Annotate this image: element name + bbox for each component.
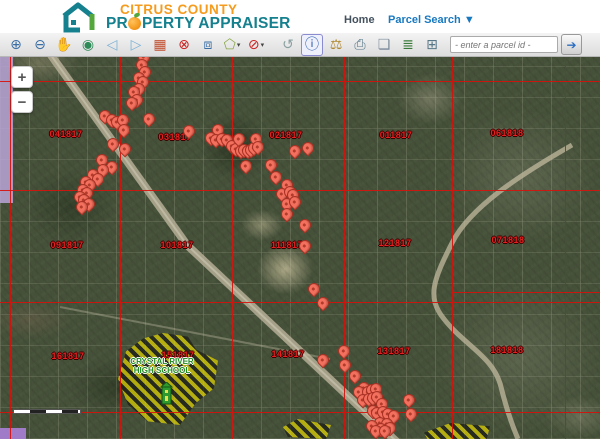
grid-line-horizontal — [0, 412, 600, 413]
grid-line-vertical — [452, 57, 453, 439]
layers-button[interactable]: ≣ — [397, 34, 419, 56]
map-zoom-out-button[interactable]: − — [11, 91, 33, 113]
zoom-in-icon: ⊕ — [10, 38, 22, 52]
full-extent-globe-icon: ◉ — [82, 38, 94, 52]
section-label-181818: 181818 — [490, 345, 523, 355]
undo-extent-button[interactable]: ↺ — [277, 34, 299, 56]
undo-extent-icon: ↺ — [282, 38, 294, 52]
clear-graphics-button[interactable]: ⊗ — [173, 34, 195, 56]
nav-parcel-search-dropdown[interactable]: Parcel Search ▼ — [388, 14, 475, 26]
map-zoom-in-button[interactable]: + — [11, 66, 33, 88]
section-label-121817: 121817 — [378, 238, 411, 248]
map-toolbar: ⊕⊖✋◉◁▷▦⊗⧈⬠▾⊘▾↺ⓘ⚖⎙❏≣⊞ ➔ — [0, 33, 600, 57]
header: CITRUS COUNTY PRPERTY APPRAISER Home Par… — [0, 0, 600, 33]
overview-map-button[interactable]: ⊞ — [421, 34, 443, 56]
identify-info-button[interactable]: ⓘ — [301, 34, 323, 56]
measure-icon: ⚖ — [330, 38, 343, 52]
previous-extent-icon: ◁ — [107, 38, 118, 52]
zoom-to-rectangle-icon: ⧈ — [204, 38, 213, 52]
initial-map-icon: ▦ — [153, 38, 166, 52]
zoom-controls: + − — [11, 66, 32, 116]
next-extent-icon: ▷ — [131, 38, 142, 52]
lavender-parcel-overlay-2 — [0, 428, 26, 439]
scale-bar — [13, 409, 81, 414]
map-canvas[interactable]: 0418170318170218170118170618180918171018… — [0, 57, 600, 439]
nav: Home Parcel Search ▼ — [0, 0, 600, 33]
section-label-091817: 091817 — [50, 240, 83, 250]
pan-icon: ✋ — [55, 38, 72, 52]
section-label-041817: 041817 — [49, 129, 82, 139]
section-label-021817: 021817 — [269, 130, 302, 140]
clear-selection-button[interactable]: ⊘▾ — [245, 34, 267, 56]
clear-selection-icon: ⊘ — [248, 38, 260, 52]
app-window: CITRUS COUNTY PRPERTY APPRAISER Home Par… — [0, 0, 600, 439]
school-label-line1: CRYSTAL RIVER — [130, 357, 193, 366]
clear-selection-caret-icon[interactable]: ▾ — [261, 41, 265, 49]
zoom-out-icon: ⊖ — [34, 38, 46, 52]
school-icon — [160, 382, 173, 406]
identify-info-icon: ⓘ — [305, 38, 319, 52]
section-label-101817: 101817 — [160, 240, 193, 250]
print-icon: ⎙ — [354, 38, 365, 52]
zoom-in-button[interactable]: ⊕ — [5, 34, 27, 56]
parcel-id-input[interactable] — [450, 36, 558, 53]
section-label-071818: 071818 — [491, 235, 524, 245]
section-label-161817: 161817 — [51, 351, 84, 361]
clear-graphics-icon: ⊗ — [178, 38, 190, 52]
grid-line-horizontal — [0, 81, 600, 82]
nav-home-link[interactable]: Home — [344, 14, 375, 26]
section-label-061818: 061818 — [490, 128, 523, 138]
next-extent-button[interactable]: ▷ — [125, 34, 147, 56]
previous-extent-button[interactable]: ◁ — [101, 34, 123, 56]
section-label-141817: 141817 — [271, 349, 304, 359]
print-button[interactable]: ⎙ — [349, 34, 371, 56]
parcel-search-go-button[interactable]: ➔ — [561, 34, 582, 55]
overview-map-icon: ⊞ — [426, 38, 438, 52]
go-arrow-icon: ➔ — [566, 38, 576, 52]
school-label-line2: HIGH SCHOOL — [130, 366, 193, 375]
measure-button[interactable]: ⚖ — [325, 34, 347, 56]
layers-icon: ≣ — [402, 38, 414, 52]
grid-line-horizontal — [0, 302, 600, 303]
school-label: CRYSTAL RIVER HIGH SCHOOL — [130, 357, 193, 375]
grid-line-vertical — [232, 57, 233, 439]
select-by-polygon-icon: ⬠ — [224, 38, 236, 52]
grid-line-segment — [452, 292, 600, 293]
zoom-to-rectangle-button[interactable]: ⧈ — [197, 34, 219, 56]
full-screen-extent-icon: ❏ — [378, 38, 391, 52]
initial-map-button[interactable]: ▦ — [149, 34, 171, 56]
section-label-011817: 011817 — [380, 130, 413, 140]
full-extent-globe-button[interactable]: ◉ — [77, 34, 99, 56]
section-label-131817: 131817 — [377, 346, 410, 356]
grid-line-vertical — [344, 57, 345, 439]
grid-line-vertical — [565, 57, 566, 439]
select-by-polygon-button[interactable]: ⬠▾ — [221, 34, 243, 56]
pan-button[interactable]: ✋ — [53, 34, 75, 56]
zoom-out-button[interactable]: ⊖ — [29, 34, 51, 56]
select-by-polygon-caret-icon[interactable]: ▾ — [237, 41, 241, 49]
full-screen-extent-button[interactable]: ❏ — [373, 34, 395, 56]
